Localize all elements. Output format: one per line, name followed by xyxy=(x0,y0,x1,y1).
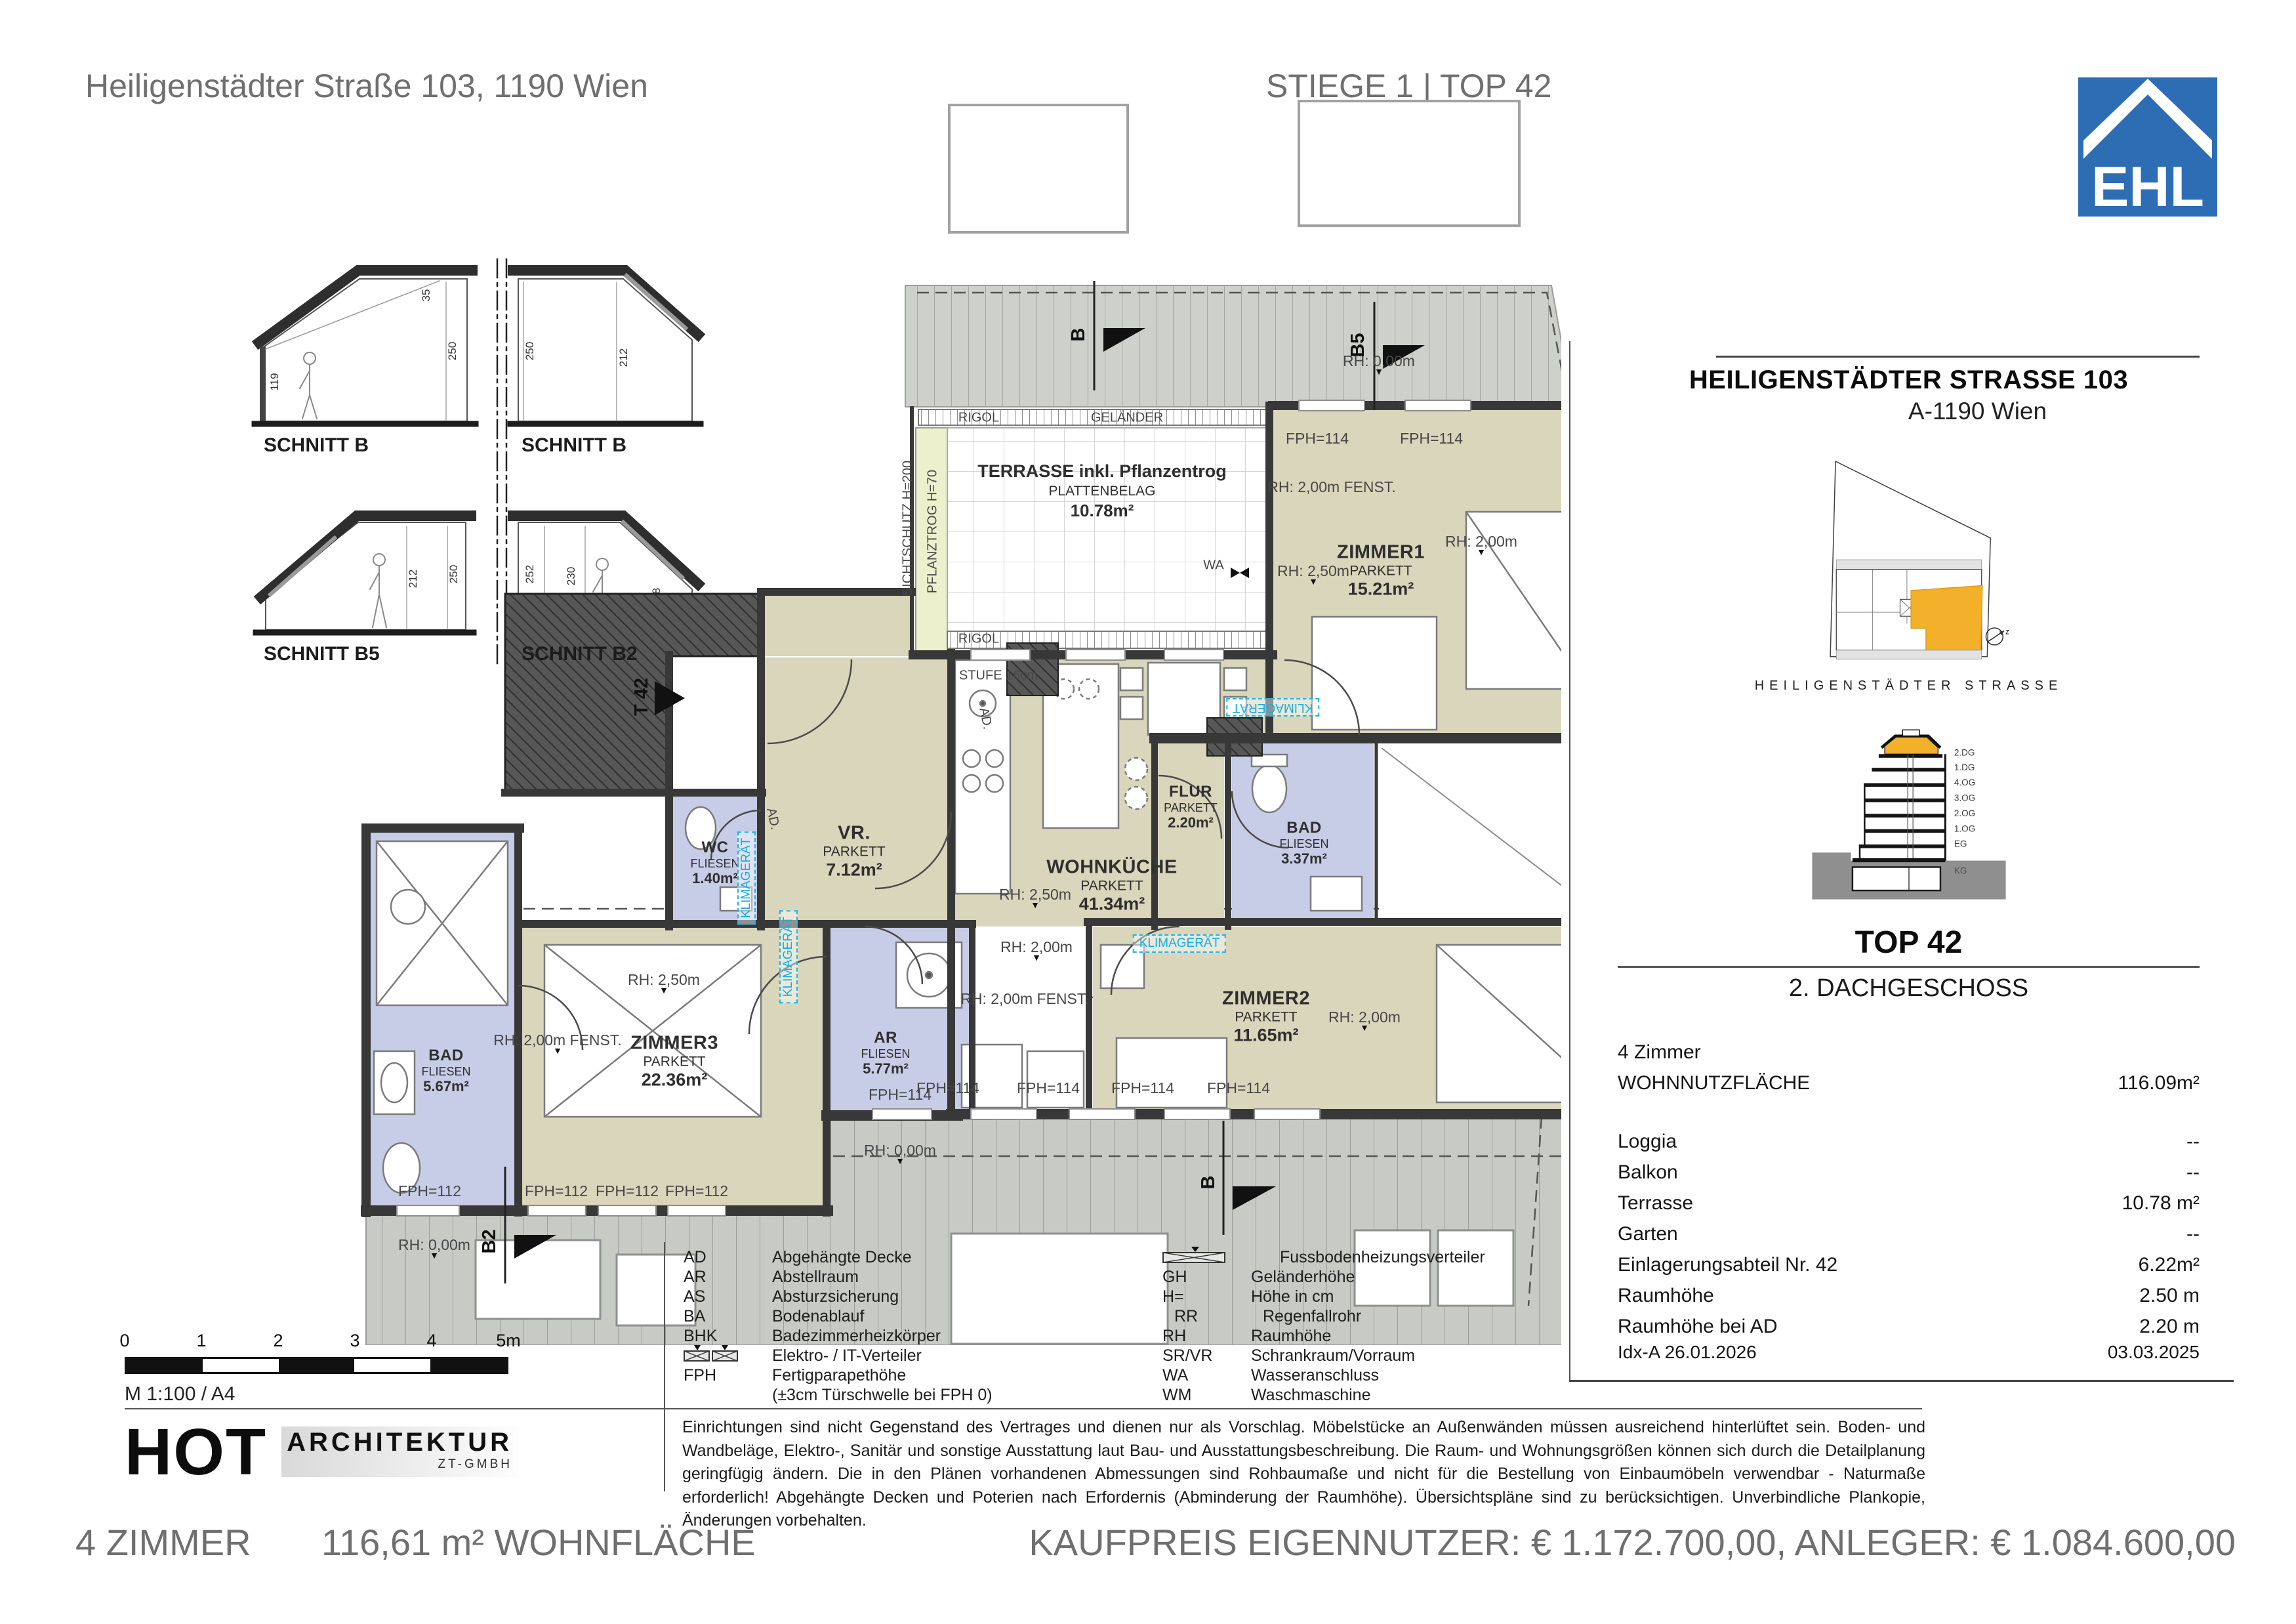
building-section: 2.DG 1.DG 4.OG 3.OG 2.OG 1.OG EG KG xyxy=(1752,725,2066,907)
svg-text:230: 230 xyxy=(565,567,577,585)
level-triangle-icon: ▼ xyxy=(999,902,1071,909)
scale-tick: 4 xyxy=(426,1331,436,1351)
floorplan-drawing: 119 250 35 250 212 212 250 252 230 148 xyxy=(98,230,1561,1345)
legend-term: Höhe in cm xyxy=(1251,1287,1334,1306)
level-triangle-icon: ▼ xyxy=(628,988,700,994)
rh-label: RH: 2,00m▼ xyxy=(1445,533,1517,556)
rh-label: RH: 2,00m▼ xyxy=(1328,1009,1401,1031)
rh-label: RH: 2,00m▼ xyxy=(1000,939,1073,961)
svg-text:252: 252 xyxy=(523,565,536,583)
plan-index-date: Idx-A 26.01.2026 xyxy=(1618,1342,1757,1363)
room-label-wc: WCFLIESEN1.40m² xyxy=(690,839,739,887)
level-triangle-icon: ▼ xyxy=(864,1158,936,1165)
legend-term: Abgehängte Decke xyxy=(772,1248,912,1267)
terrace-label: TERRASSE inkl. Pflanzentrog PLATTENBELAG… xyxy=(977,461,1227,522)
legend-abbr: SR/VR xyxy=(1162,1346,1251,1365)
legend-abbr: H= xyxy=(1162,1287,1251,1306)
legend-term: Badezimmerheizkörper xyxy=(772,1327,941,1346)
fph-label: FPH=112 xyxy=(525,1183,588,1199)
detail-value: 2.20 m xyxy=(2139,1316,2200,1338)
section-marker-b2: B2 xyxy=(480,1229,499,1253)
sidebar-floor-name: 2. DACHGESCHOSS xyxy=(1618,974,2200,1003)
floor-labels: 2.DG 1.DG 4.OG 3.OG 2.OG 1.OG EG KG xyxy=(1954,748,1975,876)
svg-text:2.DG: 2.DG xyxy=(1954,748,1975,758)
room-label-zimmer1: ZIMMER1PARKETT15.21m² xyxy=(1337,542,1425,600)
svg-text:KG: KG xyxy=(1954,865,1967,875)
scale-tick: 3 xyxy=(350,1331,359,1351)
street-label: HEILIGENSTÄDTER STRASSE xyxy=(1618,678,2200,694)
legend-abbr: BHK xyxy=(684,1327,772,1346)
terrace xyxy=(916,409,1273,651)
room-label-zimmer2: ZIMMER2PARKETT11.65m² xyxy=(1222,988,1310,1047)
svg-text:212: 212 xyxy=(407,570,419,588)
architect-line2: ZT-GMBH xyxy=(287,1457,512,1472)
legend-abbr: BA xyxy=(684,1307,772,1326)
svg-text:35: 35 xyxy=(420,289,432,302)
ehl-logo-graphic: EHL xyxy=(2078,77,2217,217)
detail-label: Loggia xyxy=(1618,1131,1677,1153)
legend-right-column: Fussbodenheizungsverteiler GHGeländerhöh… xyxy=(1162,1247,1485,1405)
legend-term: Geländerhöhe xyxy=(1251,1268,1355,1287)
sidebar-top-rule xyxy=(1716,356,2200,358)
scale-tick: 0 xyxy=(119,1331,129,1351)
legend-abbr: AS xyxy=(684,1287,772,1306)
floorplan: 119 250 35 250 212 212 250 252 230 148 xyxy=(98,230,1561,1345)
floor-slabs xyxy=(1852,754,1944,862)
room-label-vr: VR.PARKETT7.12m² xyxy=(823,823,885,881)
architect-name: HOT xyxy=(125,1423,267,1482)
section-marker-b-bottom: B xyxy=(1199,1176,1218,1190)
rigol-label: RIGOL xyxy=(958,411,999,425)
svg-text:EG: EG xyxy=(1954,839,1967,849)
rh-label: RH: 2,50m▼ xyxy=(628,972,700,994)
klimageraet-label: KLIMAGERÄT xyxy=(779,910,798,1003)
rh-label: RH: 2,00m FENST.▼ xyxy=(493,1032,622,1054)
roof-top xyxy=(905,285,1561,407)
ehl-logo-text: EHL xyxy=(2091,156,2204,217)
level-triangle-icon: ▼ xyxy=(398,1253,470,1259)
level-triangle-icon: ▼ xyxy=(493,1048,622,1054)
section-label: SCHNITT B xyxy=(522,434,626,457)
room-label-flur: FLURPARKETT2.20m² xyxy=(1164,783,1218,831)
legend-term: Bodenablauf xyxy=(772,1307,864,1326)
sidebar: HEILIGENSTÄDTER STRASSE 103 A-1190 Wien … xyxy=(1569,341,2234,1382)
sidebar-top-rule2 xyxy=(1618,966,2200,968)
svg-text:1.DG: 1.DG xyxy=(1954,762,1975,772)
section-label: SCHNITT B2 xyxy=(522,643,638,665)
legend-abbr: AD xyxy=(684,1248,772,1267)
legend-term: Schrankraum/Vorraum xyxy=(1251,1346,1415,1365)
rh-label: RH: 2,00m FENST. xyxy=(1267,479,1396,495)
scale-bar: 0 1 2 3 4 5m xyxy=(125,1331,508,1374)
svg-text:212: 212 xyxy=(617,348,630,367)
legend-term: Regenfallrohr xyxy=(1263,1307,1361,1326)
electro-it-distributor-icon xyxy=(684,1345,772,1367)
level-triangle-icon: ▼ xyxy=(1277,579,1349,585)
klimageraet-label: KLIMAGERÄT xyxy=(1226,698,1319,717)
legend-abbr: GH xyxy=(1162,1268,1251,1287)
sichtschutz-label: SICHTSCHUTZ H=200 xyxy=(901,461,915,596)
fph-label: FPH=114 xyxy=(1400,430,1463,446)
legend-abbr: WM xyxy=(1162,1386,1251,1405)
sidebar-dates: Idx-A 26.01.2026 03.03.2025 xyxy=(1618,1342,2200,1368)
page-title-address: Heiligenstädter Straße 103, 1190 Wien xyxy=(85,67,648,105)
sidebar-details: 4 Zimmer WOHNNUTZFLÄCHE116.09m² Loggia--… xyxy=(1618,1037,2200,1342)
svg-text:250: 250 xyxy=(446,342,459,360)
detail-value: 116.09m² xyxy=(2118,1072,2200,1094)
scale-tick: 1 xyxy=(196,1331,206,1351)
detail-label: Einlagerungsabteil Nr. 42 xyxy=(1618,1254,1837,1276)
svg-text:250: 250 xyxy=(523,342,536,360)
ehl-logo: EHL xyxy=(2078,77,2217,217)
detail-label: Balkon xyxy=(1618,1161,1678,1184)
rh-label: RH: 2,00m FENST. xyxy=(960,991,1089,1007)
compass-icon xyxy=(1986,628,2003,645)
legend-abbr: RR xyxy=(1162,1307,1263,1326)
fph-label: FPH=114 xyxy=(1017,1080,1080,1096)
section-label: SCHNITT B xyxy=(264,434,369,457)
scale-tick: 5m xyxy=(496,1331,521,1351)
room-label-bad-right: BADFLIESEN3.37m² xyxy=(1279,819,1328,867)
footer-area: 116,61 m² WOHNFLÄCHE xyxy=(321,1521,756,1564)
detail-label: Raumhöhe bei AD xyxy=(1618,1316,1778,1338)
disclaimer-text: Einrichtungen sind nicht Gegenstand des … xyxy=(682,1416,1925,1533)
scale-tick: 2 xyxy=(273,1331,283,1351)
svg-text:119: 119 xyxy=(268,373,281,390)
legend-term: Abstellraum xyxy=(772,1268,859,1287)
detail-label: Garten xyxy=(1618,1223,1678,1245)
legend-abbr: WA xyxy=(1162,1366,1251,1385)
site-plan: z xyxy=(1745,454,2073,672)
legend-abbr: FPH xyxy=(684,1366,772,1385)
rh-label: RH: 2,50m▼ xyxy=(1277,563,1349,585)
footer-price: KAUFPREIS EIGENNUTZER: € 1.172.700,00, A… xyxy=(1029,1521,2236,1564)
floor-heating-distributor-icon xyxy=(1162,1247,1251,1268)
gelaender-label: GELÄNDER xyxy=(1091,411,1163,425)
entry-marker-t42: T 42 xyxy=(632,678,651,716)
pflanztrog-label: PFLANZTROG H=70 xyxy=(926,470,940,593)
svg-text:1.OG: 1.OG xyxy=(1954,823,1975,833)
level-triangle-icon: ▼ xyxy=(1000,955,1073,961)
legend-term: Absturzsicherung xyxy=(772,1287,899,1306)
architect-line1: ARCHITEKTUR xyxy=(287,1428,512,1457)
svg-text:z: z xyxy=(2005,627,2009,636)
room-label-ar: ARFLIESEN5.77m² xyxy=(861,1029,910,1077)
fph-label: FPH=114 xyxy=(1286,430,1349,446)
klimageraet-label: KLIMAGERÄT xyxy=(737,831,756,925)
fph-label: FPH=112 xyxy=(398,1183,461,1199)
detail-label: Terrasse xyxy=(1618,1192,1693,1215)
detail-label: WOHNNUTZFLÄCHE xyxy=(1618,1072,1810,1094)
wa-label: WA xyxy=(1203,559,1223,573)
section-marker-b5: B5 xyxy=(1348,333,1368,357)
detail-value: 10.78 m² xyxy=(2122,1192,2200,1215)
detail-value: -- xyxy=(2186,1131,2200,1153)
legend-term: Elektro- / IT-Verteiler xyxy=(772,1346,922,1365)
detail-value: -- xyxy=(2186,1161,2200,1184)
section-marker-b-top: B xyxy=(1069,328,1088,342)
footer-rooms: 4 ZIMMER xyxy=(75,1521,251,1564)
detail-value: -- xyxy=(2186,1223,2200,1245)
sidebar-project-title: HEILIGENSTÄDTER STRASSE 103 xyxy=(1618,365,2200,395)
divider-rule xyxy=(125,1408,1922,1409)
detail-value: 6.22m² xyxy=(2139,1254,2200,1276)
legend-term: (±3cm Türschwelle bei FPH 0) xyxy=(772,1386,993,1405)
detail-value: 2.50 m xyxy=(2139,1285,2200,1307)
section-label: SCHNITT B5 xyxy=(264,643,380,665)
sidebar-project-city: A-1190 Wien xyxy=(1755,398,2200,425)
rh-label: RH: 0,00m▼ xyxy=(398,1237,470,1259)
fph-label: FPH=112 xyxy=(596,1183,659,1199)
legend-term: Waschmaschine xyxy=(1251,1386,1370,1405)
floorplan-page: { "header": { "address": "Heiligenstädte… xyxy=(0,0,2296,1624)
rh-label: RH: 2,50m▼ xyxy=(999,886,1071,909)
legend-term: Raumhöhe xyxy=(1251,1327,1331,1346)
rh-label: RH: 0,00m▼ xyxy=(864,1142,936,1165)
legend-abbr: AR xyxy=(684,1268,772,1287)
level-triangle-icon: ▼ xyxy=(1343,369,1415,375)
fph-label: FPH=114 xyxy=(869,1087,932,1102)
klimageraet-label: KLIMAGERÄT xyxy=(1133,934,1226,953)
plan-date: 03.03.2025 xyxy=(2108,1342,2200,1363)
level-triangle-icon: ▼ xyxy=(1445,549,1517,556)
level-triangle-icon: ▼ xyxy=(1328,1025,1401,1031)
legend-abbr: RH xyxy=(1162,1327,1251,1346)
fph-label: FPH=114 xyxy=(1111,1080,1174,1096)
legend-term: Fussbodenheizungsverteiler xyxy=(1280,1248,1485,1267)
fph-label: FPH=112 xyxy=(665,1183,728,1199)
stufe-label: STUFE 16cm xyxy=(959,669,1038,683)
rigol-label: RIGOL xyxy=(958,633,999,646)
legend-term: Fertigparapethöhe xyxy=(772,1366,906,1385)
roof-structure xyxy=(948,104,1129,234)
svg-text:2.OG: 2.OG xyxy=(1954,808,1975,818)
detail-label: Raumhöhe xyxy=(1618,1285,1714,1307)
scale-note: M 1:100 / A4 xyxy=(125,1383,235,1405)
fph-label: FPH=114 xyxy=(1207,1080,1270,1096)
legend-term: Wasseranschluss xyxy=(1251,1366,1379,1385)
legend-left-column: ADAbgehängte Decke ARAbstellraum ASAbstu… xyxy=(684,1247,993,1405)
room-label-bad-left: BADFLIESEN5.67m² xyxy=(421,1047,470,1095)
architect-logo: HOT ARCHITEKTUR ZT-GMBH xyxy=(125,1423,519,1482)
roof-structure xyxy=(1298,100,1521,227)
room-label-zimmer3: ZIMMER3PARKETT22.36m² xyxy=(630,1033,718,1091)
svg-text:4.OG: 4.OG xyxy=(1954,778,1975,787)
svg-text:3.OG: 3.OG xyxy=(1954,793,1975,803)
detail-label: 4 Zimmer xyxy=(1618,1041,1701,1064)
svg-text:250: 250 xyxy=(447,565,460,583)
sidebar-top-number: TOP 42 xyxy=(1618,925,2200,961)
scale-bar-numbers: 0 1 2 3 4 5m xyxy=(125,1331,508,1353)
scale-bar-segments xyxy=(125,1357,508,1374)
